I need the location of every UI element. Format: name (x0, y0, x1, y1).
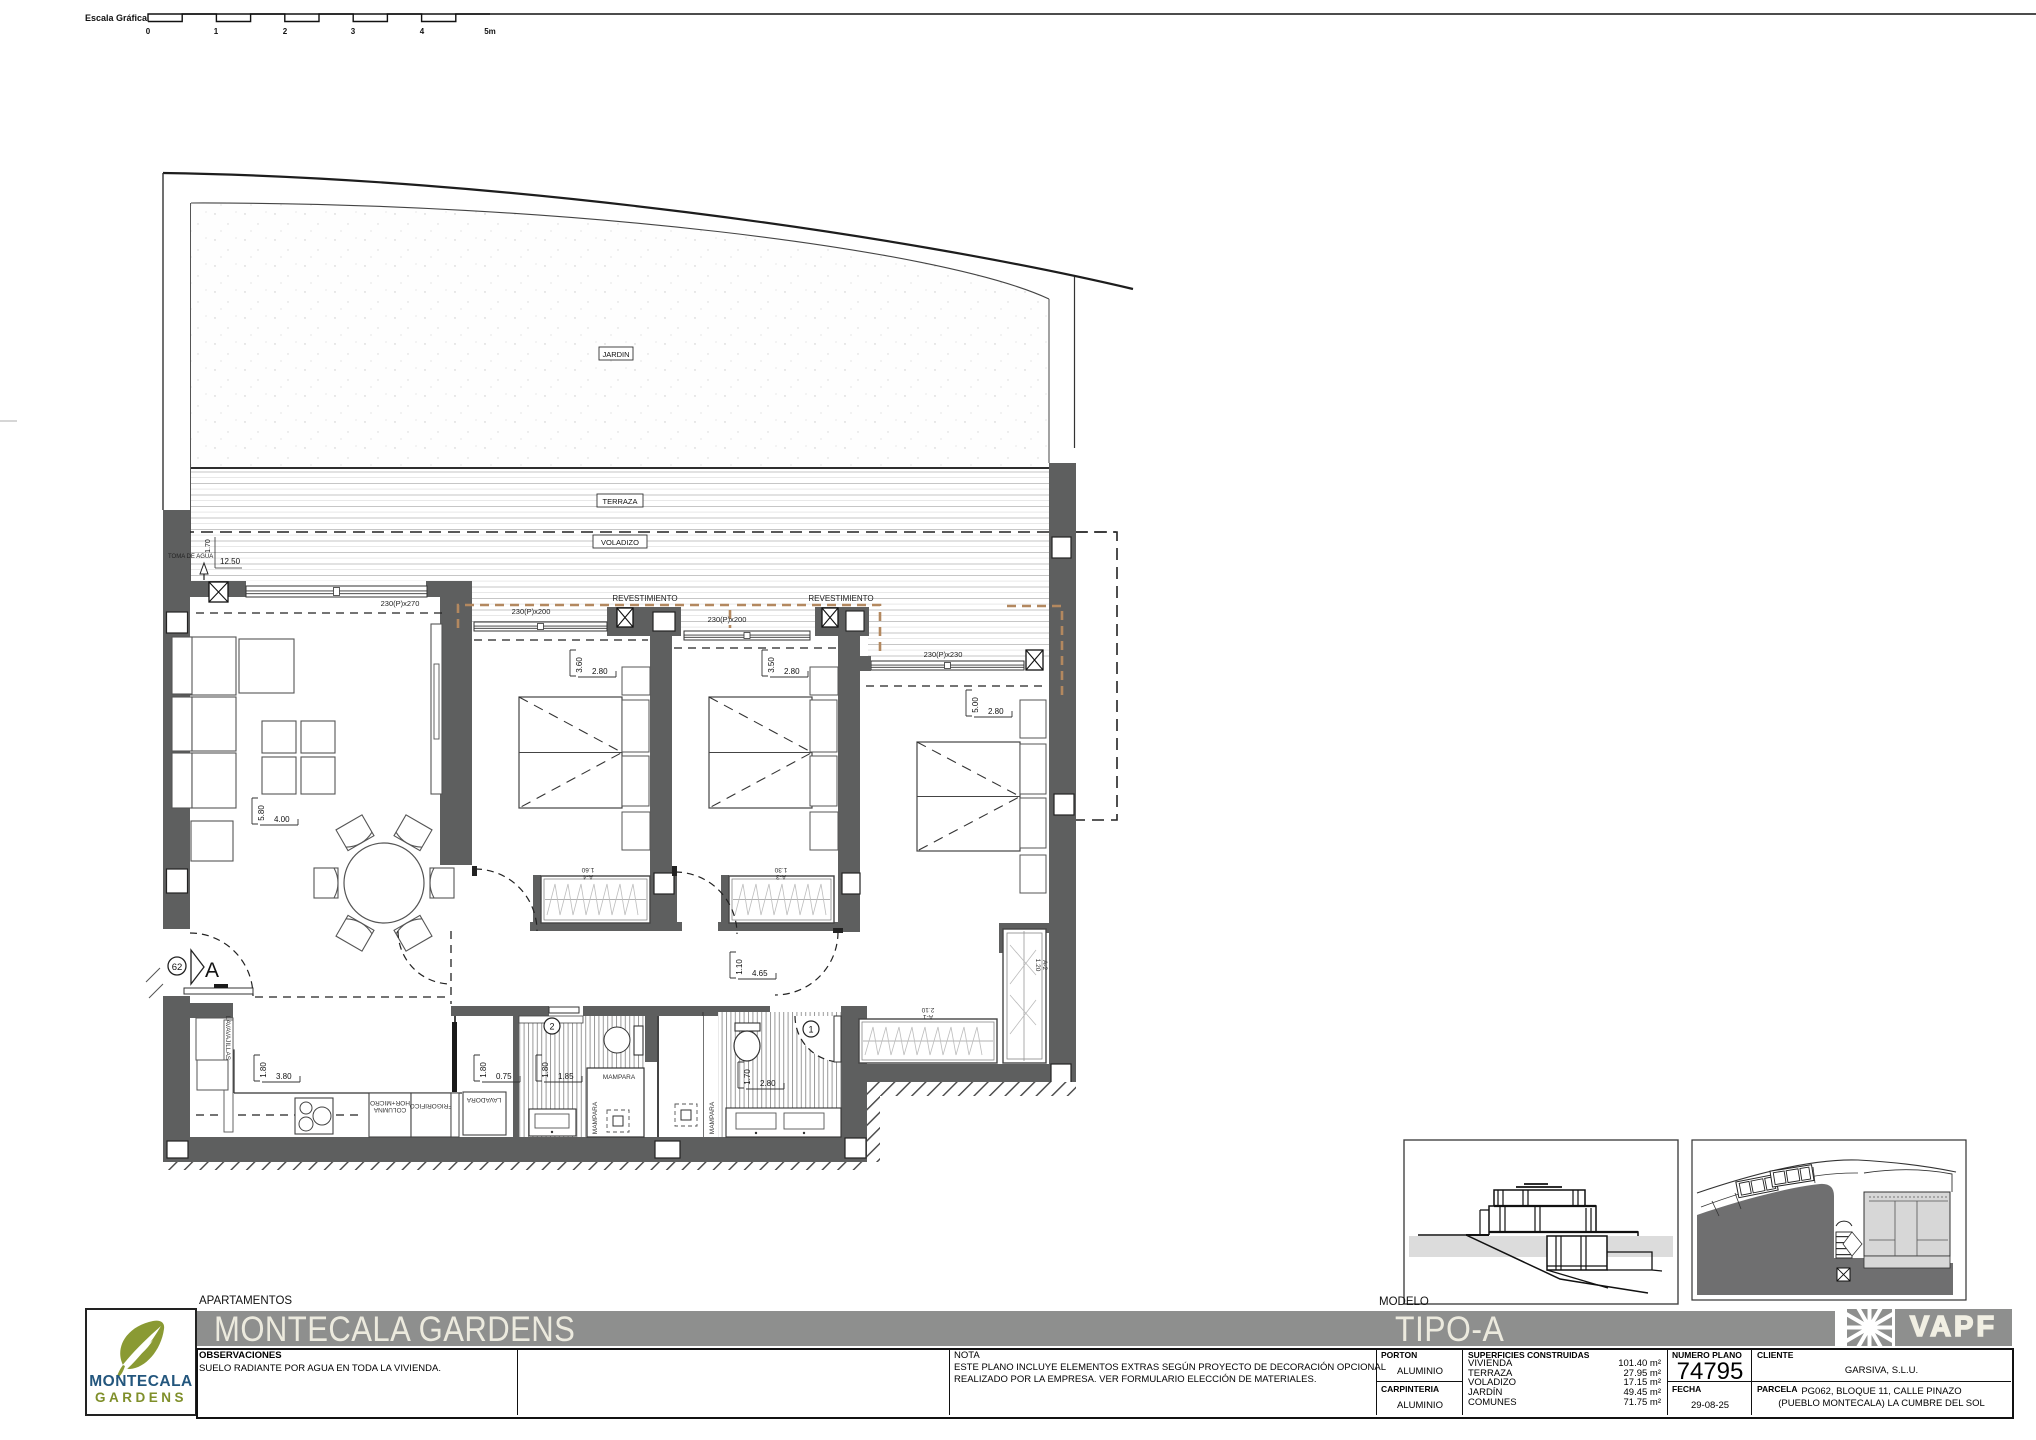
svg-text:5.00: 5.00 (971, 697, 980, 713)
svg-text:TOMA DE AGUA: TOMA DE AGUA (168, 554, 213, 560)
svg-text:3.50: 3.50 (767, 657, 776, 673)
svg-text:1.70: 1.70 (205, 539, 212, 553)
svg-text:1.80: 1.80 (479, 1062, 488, 1078)
svg-text:3.60: 3.60 (575, 657, 584, 673)
svg-text:GARDENS: GARDENS (95, 1390, 187, 1405)
svg-text:3: 3 (351, 27, 356, 36)
svg-text:4.00: 4.00 (274, 815, 290, 824)
svg-text:1.80: 1.80 (259, 1062, 268, 1078)
svg-text:3.80: 3.80 (276, 1072, 292, 1081)
svg-text:1.70: 1.70 (743, 1069, 752, 1085)
svg-text:4.65: 4.65 (752, 969, 768, 978)
svg-text:1.10: 1.10 (735, 959, 744, 975)
svg-text:VOLADIZO: VOLADIZO (601, 538, 639, 547)
svg-text:MAMPARA: MAMPARA (603, 1074, 636, 1081)
svg-text:230(P)x230: 230(P)x230 (924, 650, 963, 659)
svg-text:JARDIN: JARDIN (602, 350, 629, 359)
svg-text:2.80: 2.80 (760, 1079, 776, 1088)
svg-text:4: 4 (420, 27, 425, 36)
svg-text:5.80: 5.80 (257, 805, 266, 821)
svg-text:1: 1 (808, 1025, 813, 1035)
svg-text:LAVADORA: LAVADORA (466, 1096, 501, 1103)
svg-text:REVESTIMIENTO: REVESTIMIENTO (808, 594, 873, 603)
svg-text:5m: 5m (484, 27, 496, 36)
svg-text:REVESTIMIENTO: REVESTIMIENTO (612, 594, 677, 603)
svg-text:1.30: 1.30 (774, 866, 787, 873)
svg-text:62: 62 (172, 962, 183, 973)
svg-text:230(P)x270: 230(P)x270 (381, 599, 420, 608)
svg-text:HOR+MICRO: HOR+MICRO (370, 1099, 410, 1106)
svg-text:12.50: 12.50 (220, 557, 241, 566)
svg-text:2.80: 2.80 (592, 667, 608, 676)
svg-text:TERRAZA: TERRAZA (602, 497, 637, 506)
svg-text:COLUMNA: COLUMNA (373, 1106, 406, 1113)
svg-text:A-1: A-1 (923, 1013, 934, 1020)
svg-text:230(P)x200: 230(P)x200 (512, 607, 551, 616)
svg-text:A-4: A-4 (583, 873, 594, 880)
svg-text:0.75: 0.75 (496, 1072, 512, 1081)
svg-text:2: 2 (283, 27, 288, 36)
svg-text:A-2: A-2 (1041, 960, 1048, 971)
svg-text:230(P)x200: 230(P)x200 (708, 615, 747, 624)
svg-text:1: 1 (214, 27, 219, 36)
svg-text:MONTECALA: MONTECALA (89, 1373, 193, 1390)
svg-text:2.10: 2.10 (921, 1006, 934, 1013)
svg-text:2.80: 2.80 (784, 667, 800, 676)
svg-text:1.60: 1.60 (581, 866, 594, 873)
svg-text:0: 0 (146, 27, 151, 36)
svg-text:MAMPARA: MAMPARA (709, 1101, 716, 1134)
svg-text:A: A (205, 959, 219, 982)
svg-text:2.80: 2.80 (988, 707, 1004, 716)
svg-text:1.85: 1.85 (558, 1072, 574, 1081)
svg-text:MAMPARA: MAMPARA (592, 1101, 599, 1134)
svg-text:LAVAVAJILLAS: LAVAVAJILLAS (224, 1016, 231, 1061)
svg-text:2: 2 (549, 1022, 554, 1032)
svg-text:FRIGORIFICO: FRIGORIFICO (410, 1102, 453, 1109)
svg-text:1.80: 1.80 (541, 1062, 550, 1078)
svg-text:A-3: A-3 (776, 873, 787, 880)
svg-text:1.20: 1.20 (1034, 959, 1041, 972)
svg-text:Escala Gráfica: Escala Gráfica (85, 13, 148, 23)
